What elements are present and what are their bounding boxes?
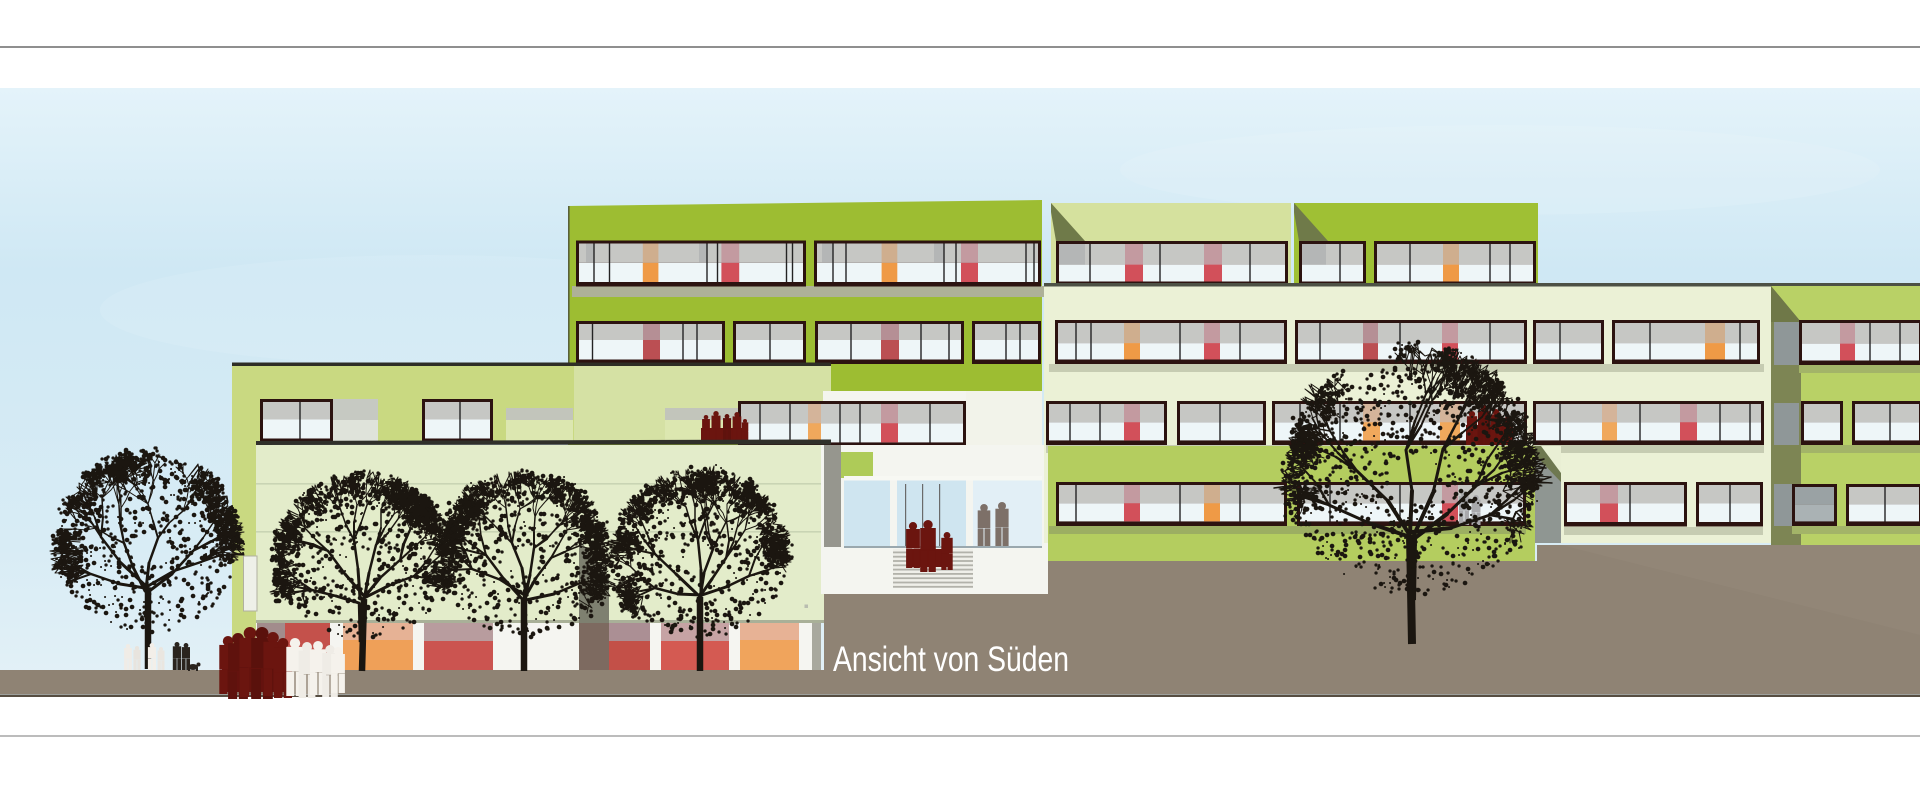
svg-text:Ansicht von Süden: Ansicht von Süden (833, 640, 1069, 679)
